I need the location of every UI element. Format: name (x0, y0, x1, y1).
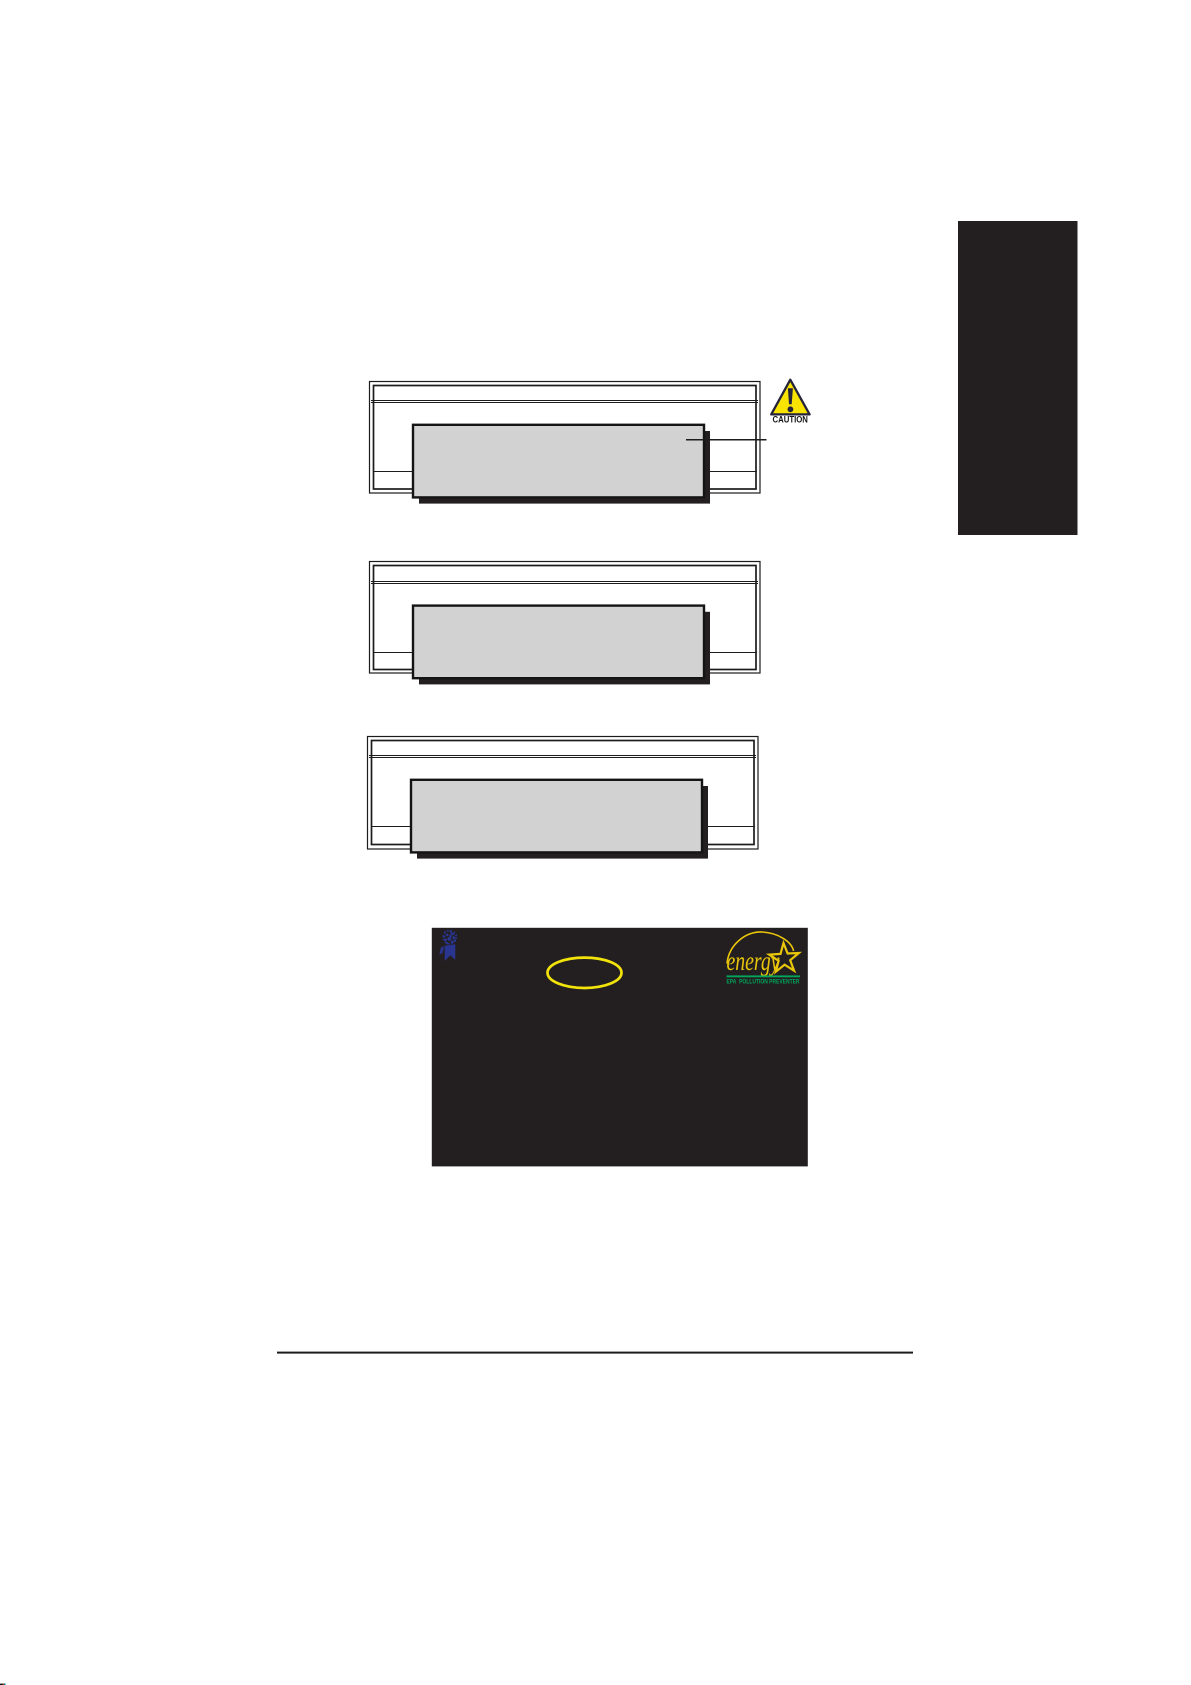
svg-text:EPA POLLUTION PREVENTER: EPA POLLUTION PREVENTER (727, 979, 800, 986)
svg-text:energy: energy (727, 946, 780, 976)
svg-text:CAUTION: CAUTION (772, 415, 808, 425)
